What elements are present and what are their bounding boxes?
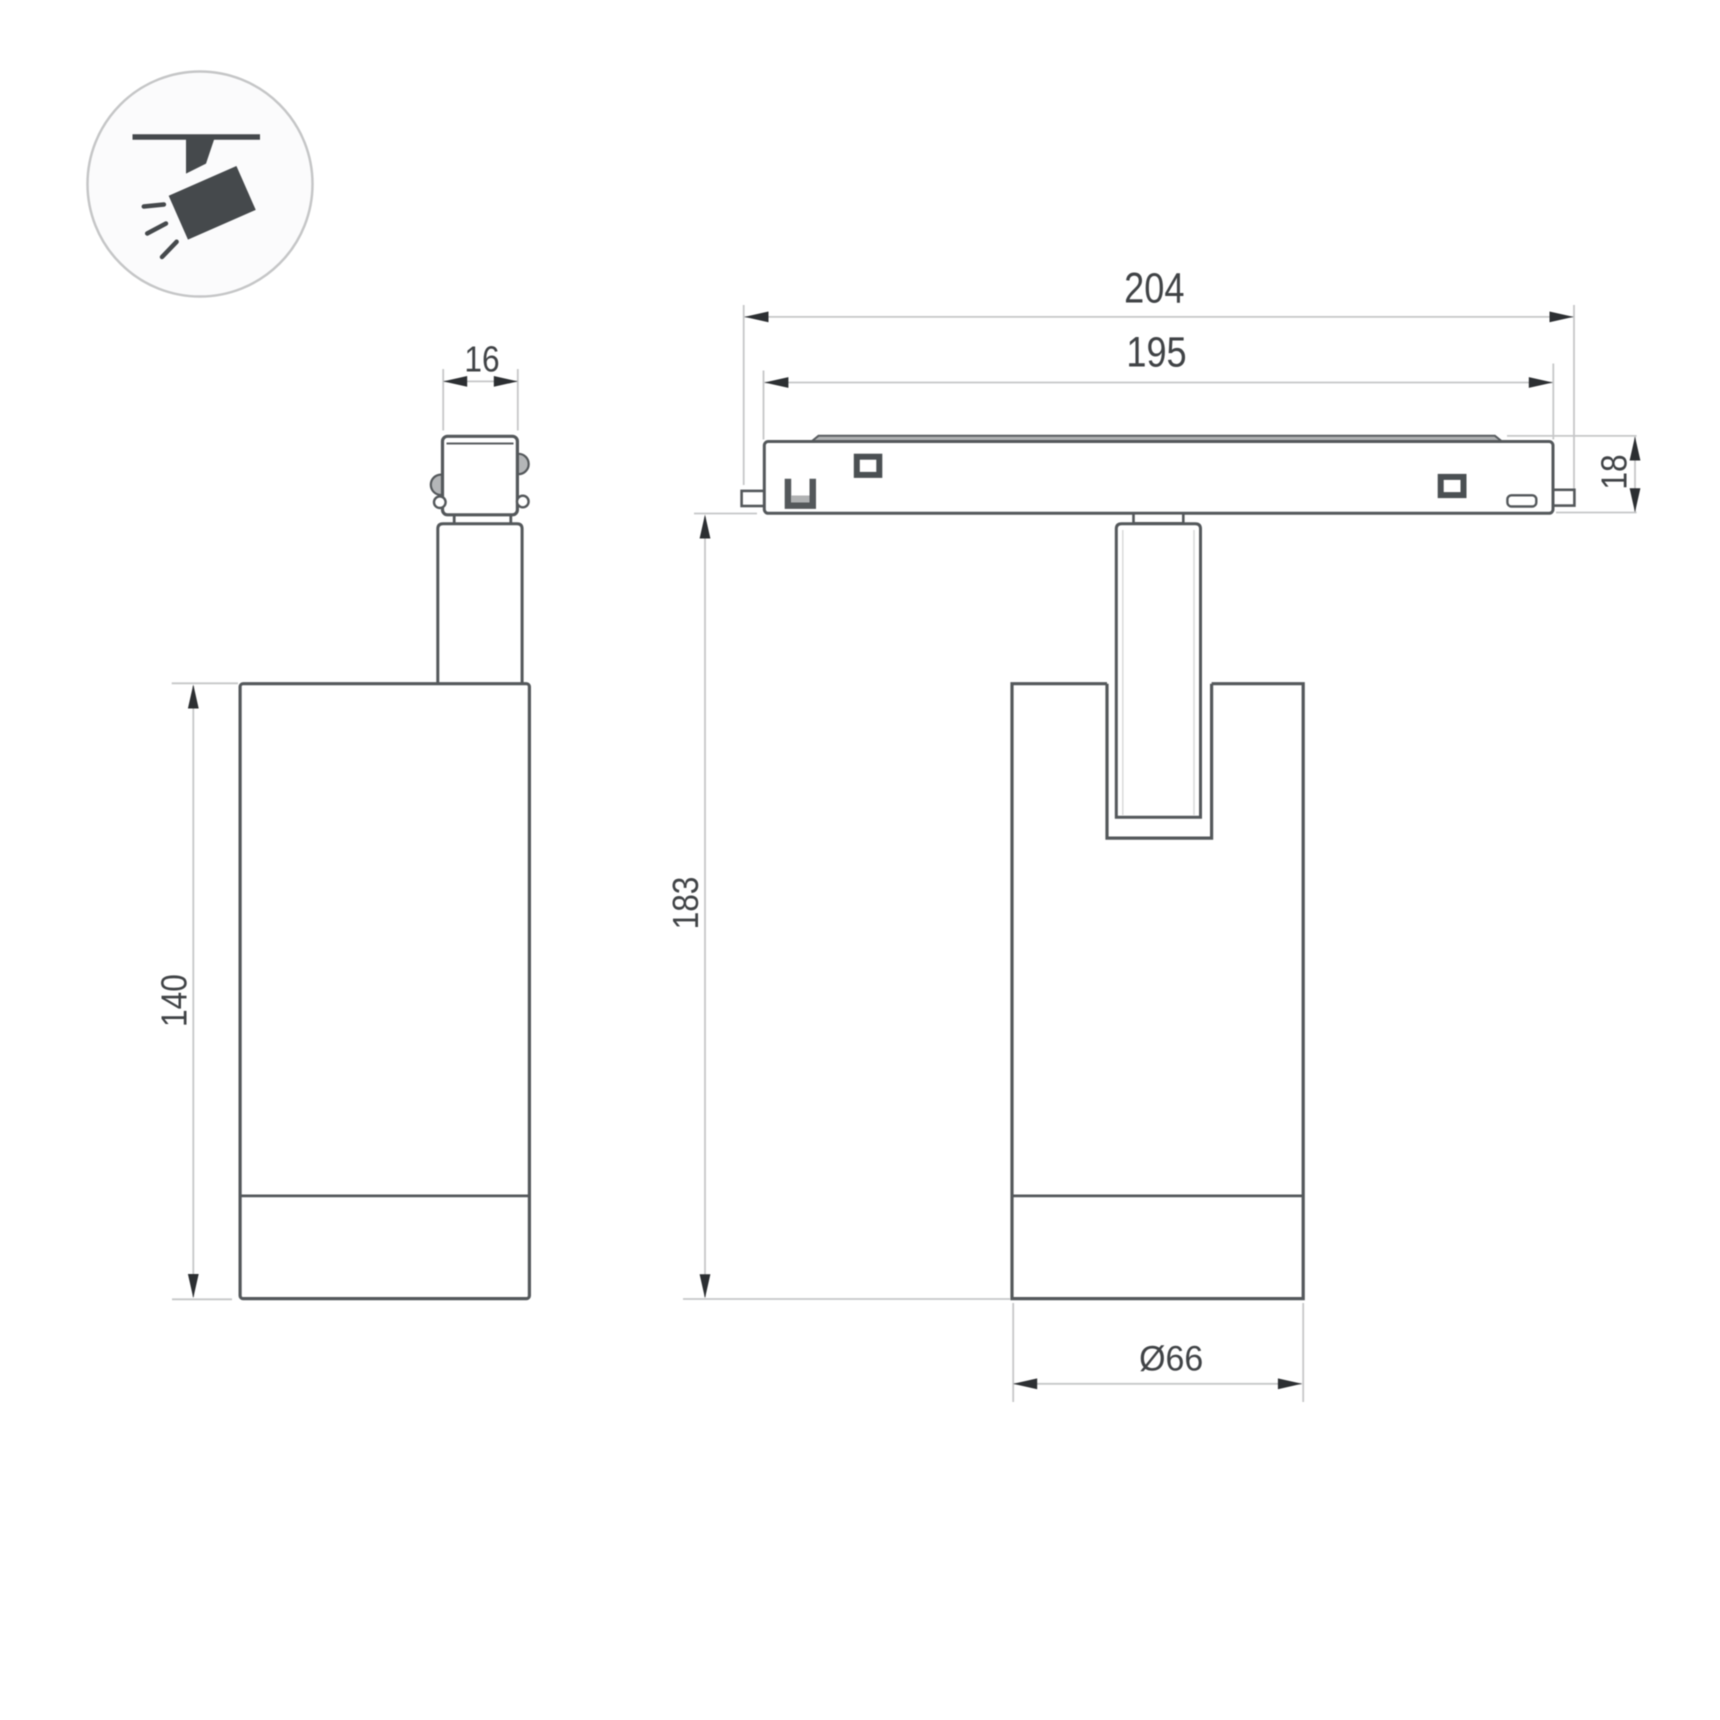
svg-text:183: 183 [666, 877, 706, 930]
svg-text:204: 204 [1124, 265, 1184, 312]
svg-text:18: 18 [1595, 454, 1635, 489]
svg-text:195: 195 [1126, 329, 1186, 376]
svg-text:16: 16 [464, 340, 499, 380]
svg-text:140: 140 [155, 974, 195, 1027]
svg-text:Ø66: Ø66 [1139, 1340, 1203, 1379]
